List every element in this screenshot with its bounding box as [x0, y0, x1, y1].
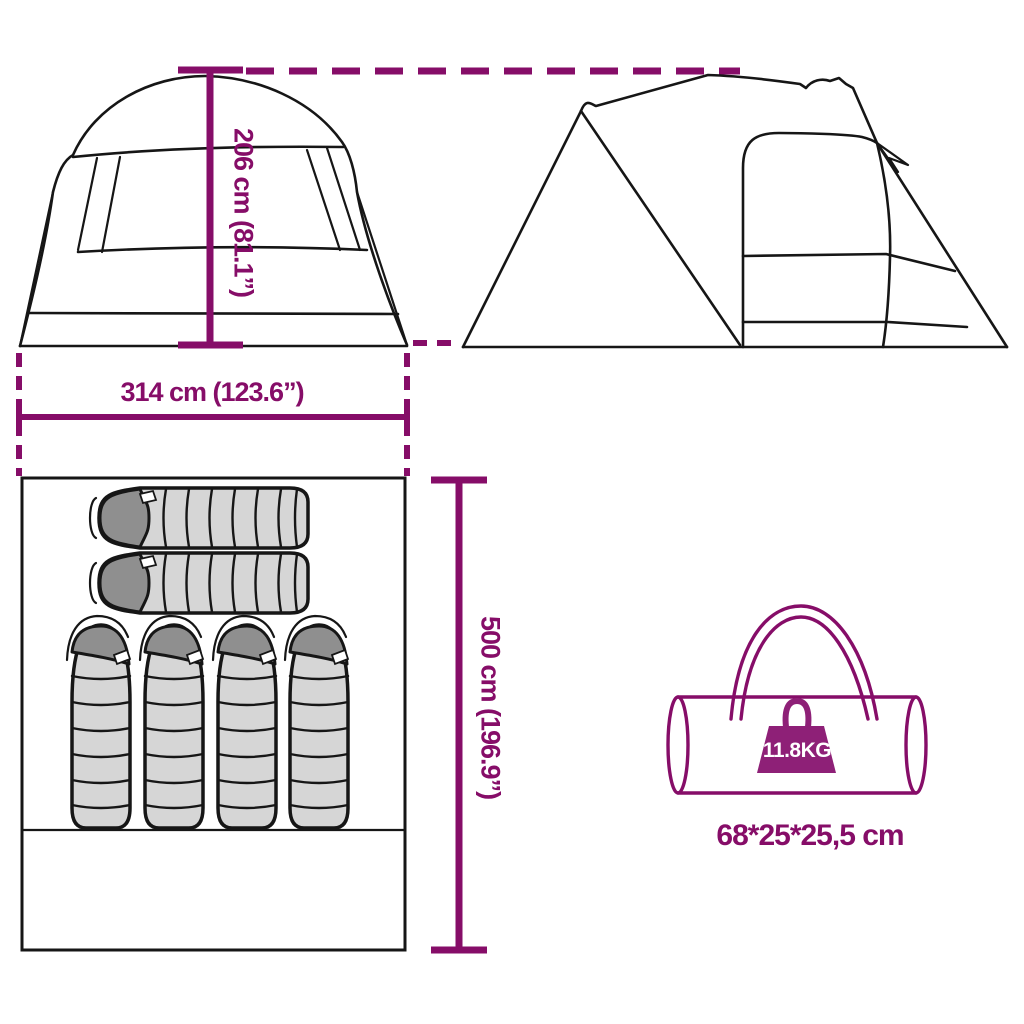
- sleeping-bag-vertical: [67, 616, 130, 828]
- diagram-lineart: [0, 0, 1024, 1024]
- tent-length-label: 500 cm (196.9”): [477, 598, 504, 818]
- sleeping-bag-vertical: [213, 616, 276, 828]
- tent-width-label: 314 cm (123.6”): [82, 379, 342, 406]
- package-size-label: 68*25*25,5 cm: [680, 821, 940, 851]
- product-dimension-diagram: 206 cm (81.1”) 314 cm (123.6”) 500 cm (1…: [0, 0, 1024, 1024]
- sleeping-bag-vertical: [285, 616, 348, 828]
- sleeping-bag-horizontal: [90, 553, 308, 613]
- sleeping-bag-vertical: [140, 616, 203, 828]
- tent-side-view: [463, 75, 1007, 347]
- sleeping-bag-horizontal: [90, 488, 308, 548]
- weight-icon: [757, 701, 836, 773]
- tent-height-label: 206 cm (81.1”): [230, 113, 257, 313]
- package-weight-label: 11.8KG: [727, 740, 867, 761]
- tent-floor-plan: [22, 478, 405, 950]
